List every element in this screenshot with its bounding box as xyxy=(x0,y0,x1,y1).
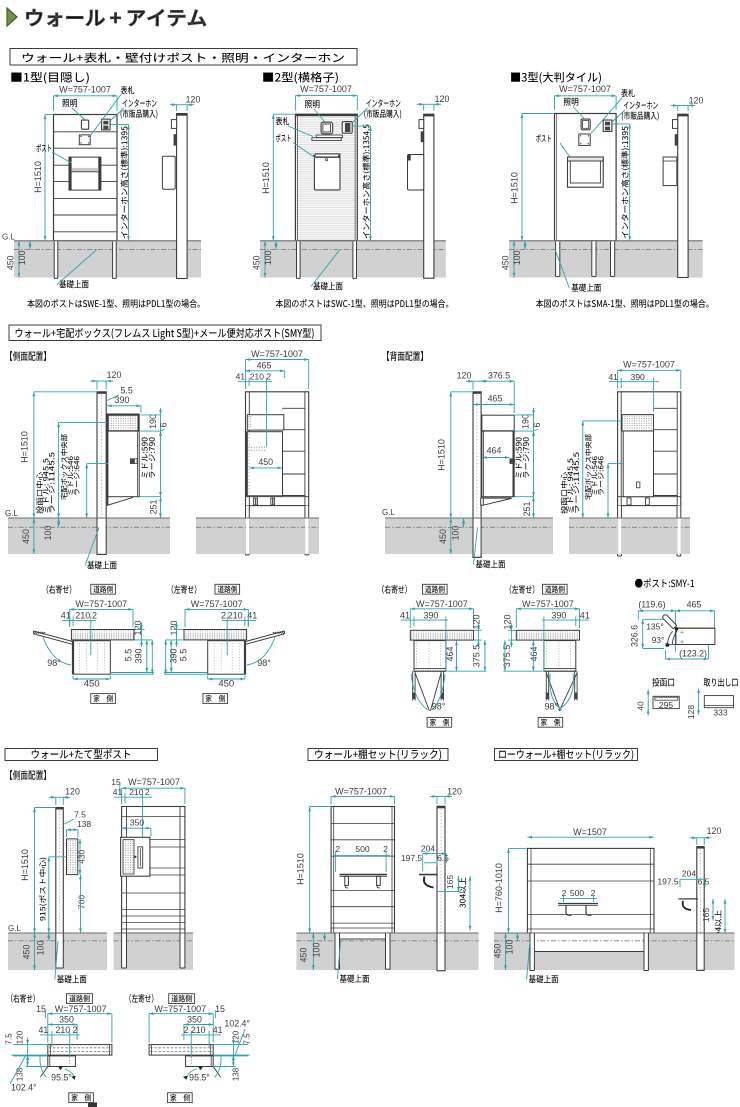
svg-text:120: 120 xyxy=(65,787,80,797)
svg-text:W=757-1007: W=757-1007 xyxy=(154,1004,206,1014)
svg-text:5.5: 5.5 xyxy=(121,386,133,396)
svg-text:2: 2 xyxy=(335,844,340,854)
svg-text:100: 100 xyxy=(312,943,322,958)
svg-text:210: 210 xyxy=(129,787,143,797)
svg-text:95.5°: 95.5° xyxy=(51,1073,72,1083)
svg-text:7.5: 7.5 xyxy=(5,1033,14,1045)
svg-text:41: 41 xyxy=(39,1025,49,1035)
svg-text:2: 2 xyxy=(92,610,97,620)
svg-text:333: 333 xyxy=(713,707,727,717)
svg-text:120: 120 xyxy=(689,95,704,105)
svg-text:210: 210 xyxy=(55,1025,70,1035)
svg-text:120: 120 xyxy=(186,95,201,105)
svg-text:376.5: 376.5 xyxy=(488,371,510,381)
svg-text:H=1510: H=1510 xyxy=(261,162,271,194)
svg-text:390: 390 xyxy=(423,611,438,621)
svg-text:100: 100 xyxy=(36,941,46,956)
svg-text:464: 464 xyxy=(445,646,455,661)
svg-text:450: 450 xyxy=(258,457,273,467)
svg-text:5.5: 5.5 xyxy=(123,649,133,662)
svg-text:102.4°: 102.4° xyxy=(11,1083,37,1093)
svg-text:H=760-1010: H=760-1010 xyxy=(494,863,504,913)
svg-text:500: 500 xyxy=(355,844,369,854)
svg-text:W=757-1007: W=757-1007 xyxy=(191,599,243,609)
svg-text:W=757-1007: W=757-1007 xyxy=(416,599,468,609)
svg-text:251: 251 xyxy=(148,500,158,515)
svg-text:465: 465 xyxy=(488,394,503,404)
svg-text:465: 465 xyxy=(687,600,702,610)
svg-text:40: 40 xyxy=(636,701,646,711)
svg-text:W=757-1007: W=757-1007 xyxy=(75,599,127,609)
svg-text:210: 210 xyxy=(228,610,243,620)
svg-text:100: 100 xyxy=(43,526,53,541)
svg-text:5.5: 5.5 xyxy=(179,649,189,662)
svg-text:6: 6 xyxy=(532,422,542,427)
svg-text:450: 450 xyxy=(299,948,309,963)
svg-text:430: 430 xyxy=(77,849,87,863)
svg-text:2: 2 xyxy=(73,1025,78,1035)
svg-text:464: 464 xyxy=(529,646,539,661)
svg-text:100: 100 xyxy=(451,526,461,541)
svg-text:450: 450 xyxy=(438,529,448,544)
svg-text:W=757-1007: W=757-1007 xyxy=(59,85,111,95)
svg-text:W=757-1007: W=757-1007 xyxy=(335,787,387,797)
svg-text:41: 41 xyxy=(608,372,618,382)
svg-text:G.L: G.L xyxy=(2,233,15,242)
svg-text:2: 2 xyxy=(562,888,567,898)
svg-text:165: 165 xyxy=(445,875,455,889)
svg-text:450: 450 xyxy=(493,944,503,959)
svg-text:120: 120 xyxy=(472,614,482,629)
svg-text:6: 6 xyxy=(159,422,169,427)
svg-text:450: 450 xyxy=(22,945,32,960)
svg-text:120: 120 xyxy=(435,94,450,104)
svg-text:204: 204 xyxy=(682,869,696,879)
svg-text:15: 15 xyxy=(36,1004,46,1014)
svg-text:2: 2 xyxy=(145,787,150,797)
svg-text:390: 390 xyxy=(631,372,645,382)
svg-text:390: 390 xyxy=(551,611,566,621)
svg-text:464: 464 xyxy=(487,446,502,456)
svg-text:390: 390 xyxy=(169,648,179,663)
svg-text:41: 41 xyxy=(213,1025,223,1035)
svg-text:120: 120 xyxy=(707,826,722,836)
svg-text:450: 450 xyxy=(501,255,511,270)
svg-text:120: 120 xyxy=(447,787,462,797)
svg-text:W=757-1007: W=757-1007 xyxy=(623,360,675,370)
svg-text:W=757-1007: W=757-1007 xyxy=(559,84,611,94)
svg-text:190: 190 xyxy=(148,414,158,429)
svg-text:350: 350 xyxy=(130,818,144,828)
svg-text:120: 120 xyxy=(15,1030,24,1044)
svg-text:2: 2 xyxy=(383,844,388,854)
svg-text:2: 2 xyxy=(184,1025,189,1035)
svg-text:450: 450 xyxy=(252,255,262,270)
svg-text:100: 100 xyxy=(512,250,522,265)
svg-text:210: 210 xyxy=(250,372,264,382)
svg-text:135°: 135° xyxy=(646,622,664,632)
svg-text:120: 120 xyxy=(107,370,122,380)
svg-text:6.5: 6.5 xyxy=(698,877,710,887)
svg-text:15: 15 xyxy=(215,1004,225,1014)
svg-text:95.5°: 95.5° xyxy=(189,1073,210,1083)
svg-text:100: 100 xyxy=(505,940,515,955)
svg-text:375.5: 375.5 xyxy=(472,645,482,668)
svg-text:197.5: 197.5 xyxy=(401,853,423,863)
svg-text:98°: 98° xyxy=(432,702,446,712)
svg-text:190: 190 xyxy=(521,414,531,429)
svg-text:98°: 98° xyxy=(544,702,558,712)
svg-text:G.L: G.L xyxy=(5,509,18,518)
svg-text:197.5: 197.5 xyxy=(657,877,679,887)
svg-text:100: 100 xyxy=(17,250,27,265)
svg-text:128: 128 xyxy=(686,705,696,719)
svg-text:W=757-1007: W=757-1007 xyxy=(251,349,303,359)
svg-text:2: 2 xyxy=(266,372,271,382)
svg-text:G.L: G.L xyxy=(8,924,21,933)
svg-text:138: 138 xyxy=(77,819,91,829)
svg-text:138: 138 xyxy=(232,1067,241,1081)
svg-text:350: 350 xyxy=(59,1015,74,1025)
svg-text:102.4°: 102.4° xyxy=(224,1019,250,1029)
svg-text:H=1510: H=1510 xyxy=(296,853,306,885)
svg-text:390: 390 xyxy=(115,395,130,405)
svg-text:450: 450 xyxy=(84,679,100,690)
svg-text:H=1510: H=1510 xyxy=(20,431,30,463)
svg-text:(119.6): (119.6) xyxy=(638,600,665,610)
svg-text:450: 450 xyxy=(21,529,31,544)
svg-text:W=757-1007: W=757-1007 xyxy=(55,1004,107,1014)
svg-text:W=757-1007: W=757-1007 xyxy=(128,777,180,787)
svg-text:41: 41 xyxy=(400,611,410,621)
svg-text:120: 120 xyxy=(169,620,179,635)
svg-text:98°: 98° xyxy=(47,658,61,668)
svg-text:375.5: 375.5 xyxy=(502,645,512,668)
svg-text:210: 210 xyxy=(75,610,90,620)
svg-text:100: 100 xyxy=(263,250,273,265)
svg-text:H=1510: H=1510 xyxy=(33,161,43,193)
svg-text:465: 465 xyxy=(257,361,272,371)
svg-text:204: 204 xyxy=(421,843,435,853)
svg-text:H=1510: H=1510 xyxy=(510,172,520,204)
svg-text:41: 41 xyxy=(580,611,590,621)
svg-text:H=1510: H=1510 xyxy=(20,849,30,881)
svg-text:98°: 98° xyxy=(257,658,271,668)
svg-text:7.5: 7.5 xyxy=(74,810,86,820)
svg-text:138: 138 xyxy=(15,1067,24,1081)
svg-text:G.L: G.L xyxy=(382,508,395,517)
svg-text:41: 41 xyxy=(113,787,123,797)
svg-text:W=757-1007: W=757-1007 xyxy=(300,84,352,94)
svg-text:93°: 93° xyxy=(652,635,665,645)
svg-text:295: 295 xyxy=(659,700,673,710)
svg-text:210: 210 xyxy=(191,1025,206,1035)
svg-text:165: 165 xyxy=(701,908,711,922)
svg-text:326.6: 326.6 xyxy=(630,625,640,647)
svg-text:H=1510: H=1510 xyxy=(437,439,447,471)
svg-text:450: 450 xyxy=(218,679,234,690)
svg-text:251: 251 xyxy=(522,502,532,517)
svg-text:500: 500 xyxy=(570,888,584,898)
svg-text:700: 700 xyxy=(77,895,87,909)
svg-text:(123.2): (123.2) xyxy=(679,649,707,659)
svg-text:350: 350 xyxy=(187,1015,202,1025)
svg-text:120: 120 xyxy=(457,371,472,381)
svg-text:41: 41 xyxy=(236,372,246,382)
svg-text:390: 390 xyxy=(134,648,144,663)
svg-text:2: 2 xyxy=(221,610,226,620)
svg-text:450: 450 xyxy=(6,255,16,270)
svg-text:W=1507: W=1507 xyxy=(573,827,607,837)
svg-text:W=757-1007: W=757-1007 xyxy=(522,599,574,609)
svg-text:7.5: 7.5 xyxy=(243,1033,252,1045)
